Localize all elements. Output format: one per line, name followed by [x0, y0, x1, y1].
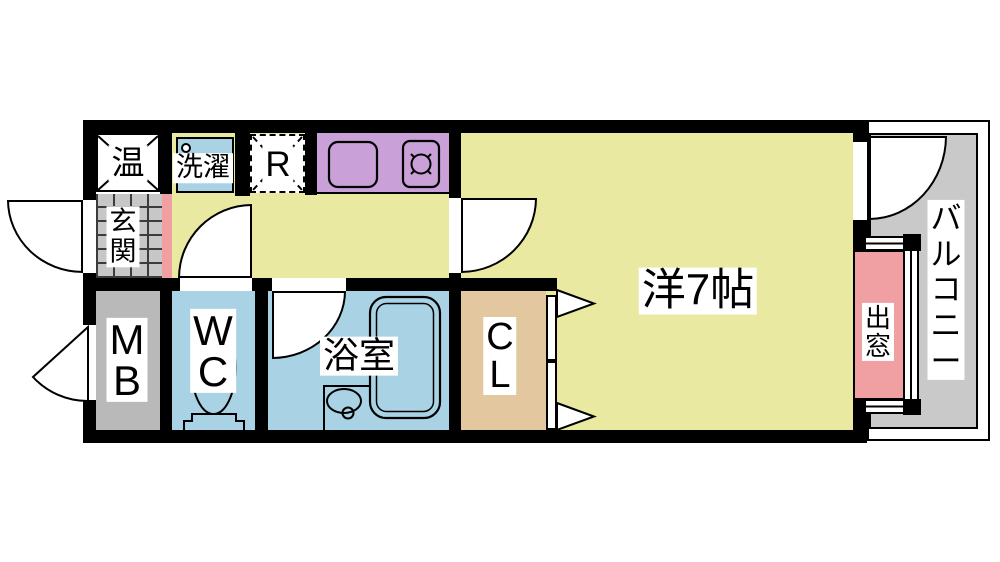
wall-right-upper	[853, 120, 867, 142]
meter-box-door-wedge	[33, 327, 88, 401]
wall-bottom	[83, 430, 867, 443]
entrance-door-arc	[7, 200, 83, 273]
floorplan-canvas: 温 洗濯 R 玄 関 M B W C 浴室 C L 洋7帖 出 窓 バ ル コ …	[0, 0, 1000, 562]
kitchen-counter	[317, 133, 449, 194]
entrance-step	[162, 194, 172, 278]
wall-stub-heater	[160, 120, 172, 194]
meter-box-label: M B	[107, 318, 148, 402]
closet-label: C L	[483, 317, 516, 395]
closet-door-panel-bottom	[546, 361, 557, 430]
bathroom-label: 浴室	[320, 337, 398, 376]
wall-left-middle	[83, 273, 96, 325]
toilet-label: W C	[190, 309, 236, 393]
wall-left-lower	[83, 400, 96, 443]
wall-left-upper	[83, 120, 96, 200]
wall-right-middle	[853, 220, 867, 250]
entrance-label: 玄 関	[107, 206, 140, 267]
wall-mid-center	[252, 278, 272, 291]
western-room-label: 洋7帖	[639, 268, 757, 315]
balcony-label: バ ル コ ニ ー	[928, 200, 965, 380]
wall-hall-room-upper	[449, 120, 461, 198]
wall-bath-closet	[449, 273, 461, 430]
bay-window-label: 出 窓	[862, 303, 894, 361]
closet-door-panel-top	[546, 295, 557, 361]
wall-stub-kitchen	[305, 120, 317, 195]
water-heater-label: 温	[109, 145, 148, 181]
bay-window-frame-top	[866, 236, 905, 251]
wall-wc-bath	[255, 291, 268, 430]
wall-right-lower	[853, 400, 867, 430]
wall-top	[83, 120, 867, 133]
wall-mb-wc	[160, 291, 172, 430]
wall-stub-laundry	[235, 120, 250, 196]
wall-mid-left	[96, 278, 180, 291]
bay-window-cap-top	[903, 234, 921, 251]
bay-window-glazing	[903, 250, 919, 400]
bay-window-frame-bottom	[866, 399, 905, 414]
bay-window-cap-bottom	[903, 399, 921, 415]
refrigerator-label: R	[262, 146, 293, 184]
laundry-label: 洗濯	[173, 153, 233, 183]
